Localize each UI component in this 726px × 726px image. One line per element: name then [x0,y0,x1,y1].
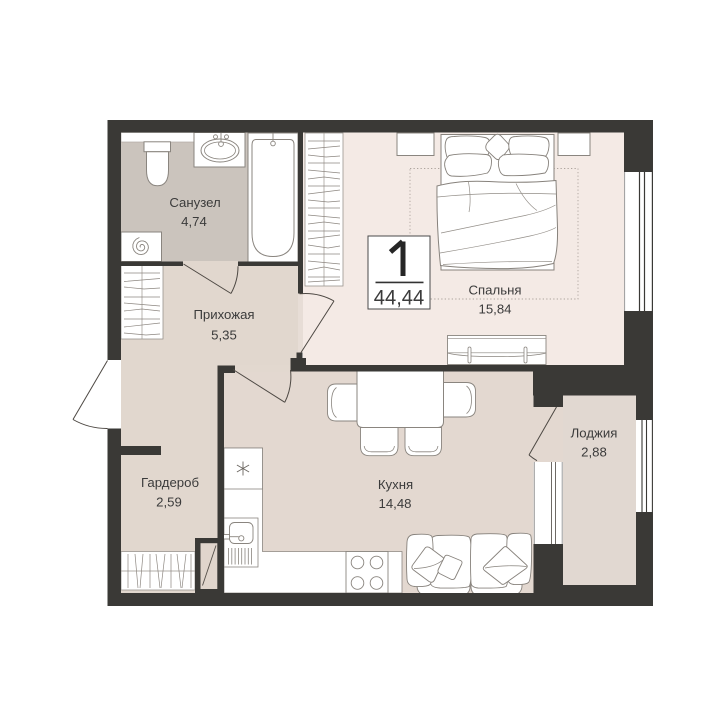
svg-text:Спальня: Спальня [469,283,522,298]
svg-text:Прихожая: Прихожая [193,307,254,322]
svg-text:2,88: 2,88 [581,445,607,460]
svg-text:2,59: 2,59 [156,495,182,510]
svg-text:4,74: 4,74 [181,214,207,229]
svg-text:5,35: 5,35 [211,328,237,343]
svg-text:Кухня: Кухня [378,477,413,492]
svg-text:14,48: 14,48 [378,496,411,511]
svg-text:44,44: 44,44 [374,287,425,310]
svg-text:15,84: 15,84 [478,302,511,317]
svg-text:Санузел: Санузел [169,195,220,210]
svg-text:Лоджия: Лоджия [571,426,618,441]
svg-text:Гардероб: Гардероб [141,475,199,490]
